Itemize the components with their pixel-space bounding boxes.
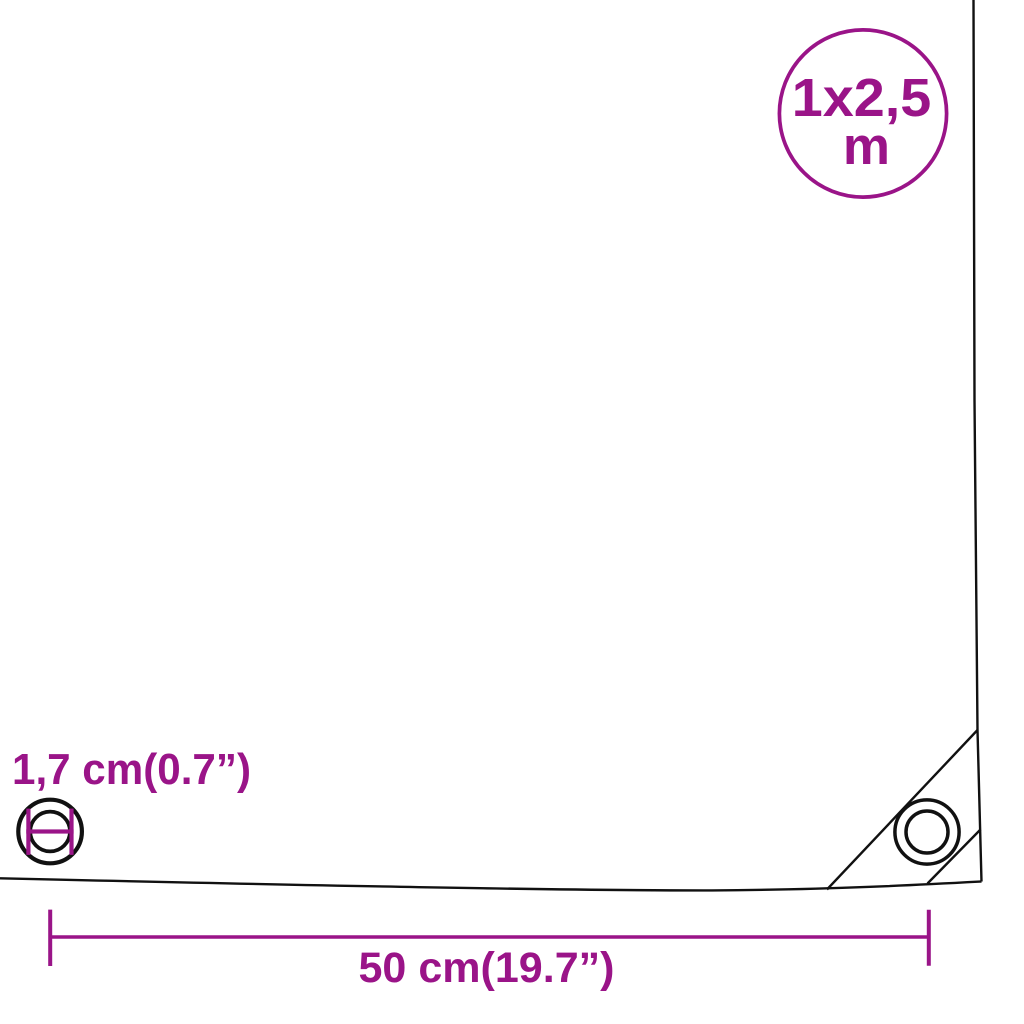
svg-text:1,7 cm(0.7”): 1,7 cm(0.7”) [12,745,251,794]
svg-text:m: m [843,117,890,176]
svg-text:50 cm(19.7”): 50 cm(19.7”) [359,945,615,992]
